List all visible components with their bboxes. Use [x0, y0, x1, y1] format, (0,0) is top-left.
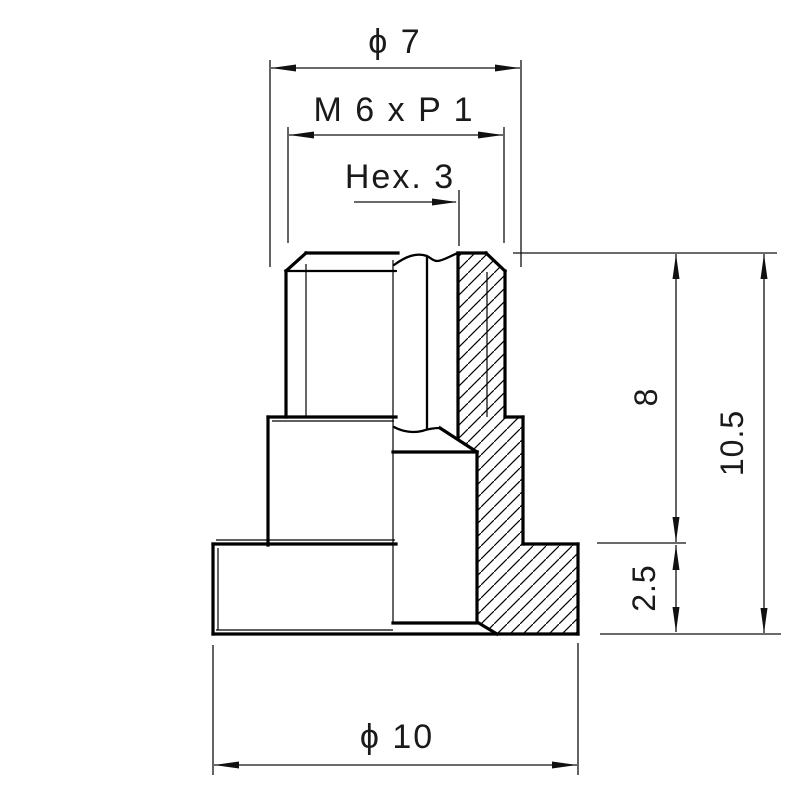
- arrowhead-right: [552, 762, 577, 769]
- dim-label-hex: Hex. 3: [345, 158, 455, 196]
- dim-hex-socket: Hex. 3: [345, 158, 459, 246]
- arrowhead-up: [673, 545, 680, 570]
- dim-label-flange-thickness: 2.5: [626, 564, 662, 611]
- arrowhead-down: [673, 607, 680, 632]
- dim-label-body-height: 8: [628, 388, 664, 407]
- dim-label-total-height: 10.5: [714, 410, 750, 476]
- dim-label-top-diameter: ϕ 7: [368, 23, 421, 61]
- arrowhead-down: [673, 517, 680, 542]
- technical-drawing: ϕ 7 M 6 x P 1 Hex. 3 8 10.5 2.5: [0, 0, 787, 787]
- break-line-bottom-wavy: [394, 427, 440, 432]
- dim-top-diameter: ϕ 7: [270, 23, 521, 267]
- dim-label-flange-diameter: ϕ 10: [360, 718, 434, 756]
- thin-feature-lines: [216, 260, 487, 630]
- dim-flange-diameter: ϕ 10: [213, 643, 578, 775]
- arrowhead-down: [761, 608, 768, 633]
- arrowhead-left: [289, 132, 314, 139]
- outline-thread-chamfer-left: [286, 253, 306, 271]
- arrowhead-right: [495, 65, 520, 72]
- dim-label-thread: M 6 x P 1: [314, 91, 475, 129]
- arrowhead-up: [673, 254, 680, 279]
- arrowhead-left: [271, 65, 296, 72]
- arrowhead-right: [478, 132, 503, 139]
- arrowhead-right: [432, 199, 457, 206]
- arrowhead-left: [214, 762, 239, 769]
- engineering-drawing-canvas: ϕ 7 M 6 x P 1 Hex. 3 8 10.5 2.5: [0, 0, 787, 787]
- arrowhead-up: [761, 254, 768, 279]
